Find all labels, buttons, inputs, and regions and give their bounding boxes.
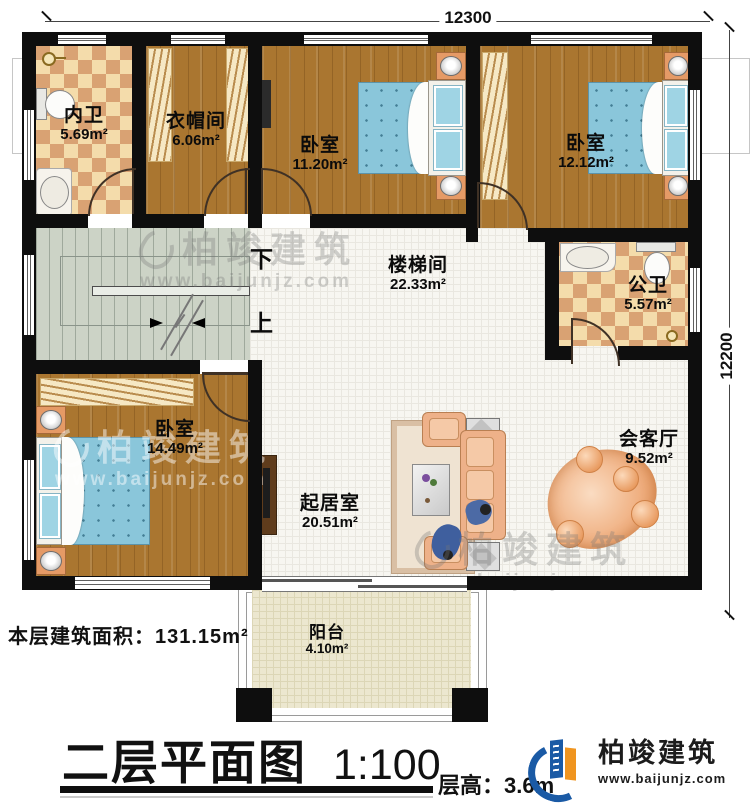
room-area: 4.10m² xyxy=(306,642,349,657)
room-name: 内卫 xyxy=(60,106,108,127)
pillow xyxy=(434,130,462,170)
floor-plan: 12300 12200 xyxy=(0,0,750,806)
window xyxy=(24,460,34,560)
logo-text: 柏竣建筑 www.baijunjz.com xyxy=(598,740,726,785)
watermark-icon xyxy=(48,423,97,473)
balcony-column xyxy=(452,688,488,722)
logo-building-blue xyxy=(550,739,563,779)
sliding-door-panel xyxy=(262,579,372,582)
stair-arrow-right xyxy=(150,318,163,328)
cushion xyxy=(429,418,459,440)
sink-icon xyxy=(40,176,69,209)
door-leaf xyxy=(132,168,134,214)
watermark-icon xyxy=(133,225,182,275)
scale-label: 1:100 xyxy=(333,741,441,790)
dim-label-right: 12200 xyxy=(717,327,737,384)
wardrobe-rack xyxy=(40,378,194,406)
room-label: 卧室 11.20m² xyxy=(292,136,347,173)
window xyxy=(531,35,652,44)
room-name: 卧室 xyxy=(292,136,347,157)
wall xyxy=(466,228,478,242)
room-name: 衣帽间 xyxy=(166,112,226,133)
tv-icon xyxy=(262,80,271,128)
wardrobe-rack xyxy=(226,48,250,162)
title-underline-thin xyxy=(60,796,433,798)
nightstand xyxy=(36,547,66,575)
room-area: 5.57m² xyxy=(624,297,672,313)
room-area: 6.06m² xyxy=(166,133,226,149)
balcony-column xyxy=(236,688,272,722)
page-title: 二层平面图 xyxy=(62,724,307,793)
bed xyxy=(358,82,432,174)
balcony-floor xyxy=(252,590,471,708)
room-label: 会客厅 9.52m² xyxy=(619,430,679,467)
cushion xyxy=(466,470,494,500)
wardrobe-rack xyxy=(482,52,508,200)
room-area: 11.20m² xyxy=(292,157,347,173)
window xyxy=(171,35,225,44)
wall xyxy=(248,360,262,576)
watermark-icon xyxy=(409,525,458,575)
door-leaf xyxy=(261,168,263,214)
window xyxy=(24,110,34,180)
flower-decor xyxy=(425,498,430,503)
room-label: 楼梯间 22.33m² xyxy=(388,256,448,293)
door-leaf xyxy=(202,372,248,375)
title-row: 二层平面图 1:100 xyxy=(62,724,441,793)
pillow xyxy=(665,130,687,170)
logo-icon xyxy=(528,736,590,794)
dim-line-right xyxy=(729,30,730,618)
wall xyxy=(134,214,204,228)
wall xyxy=(248,32,262,228)
flower-decor xyxy=(422,474,430,482)
room-area: 14.49m² xyxy=(147,441,203,457)
coffee-table xyxy=(412,464,450,516)
watermark-url: www.baijunjz.com xyxy=(140,272,358,293)
room-name: 阳台 xyxy=(306,624,349,642)
room-label: 内卫 5.69m² xyxy=(60,106,108,143)
room-name: 卧室 xyxy=(147,420,203,441)
sliding-door-panel xyxy=(358,585,467,588)
floor-area-total: 本层建筑面积：131.15m² xyxy=(8,620,249,649)
towel-ring-icon xyxy=(42,52,56,66)
sink-icon xyxy=(566,246,609,269)
flower-decor xyxy=(430,479,437,486)
room-name: 会客厅 xyxy=(619,430,679,451)
logo-building-orange xyxy=(565,747,576,780)
nightstand xyxy=(436,52,466,80)
nightstand xyxy=(436,172,466,200)
room-area: 22.33m² xyxy=(388,277,448,293)
stair-arrow-left xyxy=(192,318,205,328)
watermark-brand: 柏竣建筑 xyxy=(458,530,634,570)
stairs-up-label: 上 xyxy=(250,304,273,338)
logo-url: www.baijunjz.com xyxy=(598,772,726,785)
window xyxy=(690,90,700,180)
wall xyxy=(545,346,572,360)
wall xyxy=(618,346,702,360)
dim-line-top xyxy=(45,21,710,22)
window xyxy=(690,268,700,332)
wall xyxy=(528,228,702,242)
room-area: 9.52m² xyxy=(619,451,679,467)
window xyxy=(75,577,210,589)
door-leaf xyxy=(245,168,247,214)
room-label: 卧室 12.12m² xyxy=(558,134,614,171)
room-area: 5.69m² xyxy=(60,127,108,143)
room-label: 公卫 5.57m² xyxy=(624,276,672,313)
window xyxy=(304,35,428,44)
cushion xyxy=(466,437,494,467)
title-underline xyxy=(60,786,433,793)
wall xyxy=(22,214,88,228)
stool xyxy=(631,500,659,528)
room-label: 阳台 4.10m² xyxy=(306,624,349,657)
pillow xyxy=(40,494,60,538)
dim-tick xyxy=(703,11,714,22)
sofa xyxy=(460,430,506,540)
stool xyxy=(613,466,639,492)
watermark-url: www.baijunjz.com xyxy=(55,470,273,491)
room-name: 卧室 xyxy=(558,134,614,155)
pillow xyxy=(434,86,462,126)
room-label: 卧室 14.49m² xyxy=(147,420,203,457)
person-figure-head xyxy=(480,504,491,515)
room-area: 12.12m² xyxy=(558,155,614,171)
dim-tick xyxy=(41,11,52,22)
room-name: 楼梯间 xyxy=(388,256,448,277)
wall xyxy=(310,214,466,228)
wall xyxy=(545,242,559,360)
door-leaf xyxy=(571,318,573,364)
stairs-down-label: 下 xyxy=(250,240,273,274)
room-area: 20.51m² xyxy=(300,515,360,531)
watermark: 柏竣建筑 www.baijunjz.com xyxy=(140,230,358,292)
dim-label-top: 12300 xyxy=(439,8,496,28)
room-name: 起居室 xyxy=(300,494,360,515)
pillow xyxy=(665,86,687,126)
logo-brand: 柏竣建筑 xyxy=(598,740,726,767)
window xyxy=(58,35,106,44)
wall xyxy=(22,360,200,374)
room-label: 起居室 20.51m² xyxy=(300,494,360,531)
wall xyxy=(467,576,702,590)
room-label: 衣帽间 6.06m² xyxy=(166,112,226,149)
door-leaf xyxy=(477,182,479,228)
room-name: 公卫 xyxy=(624,276,672,297)
toilet-icon xyxy=(636,242,676,252)
window xyxy=(24,255,34,335)
floor-drain-icon xyxy=(666,330,678,342)
stool xyxy=(576,446,603,473)
